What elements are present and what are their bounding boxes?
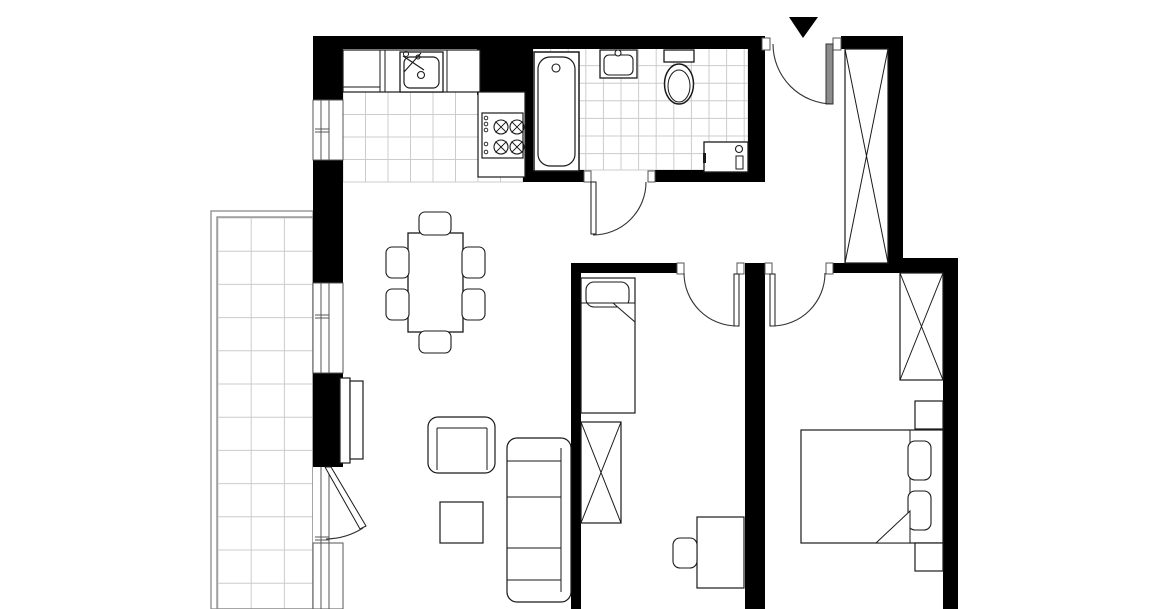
tv-screen	[340, 378, 350, 463]
dining-chair-left-1	[386, 247, 409, 278]
top-wall-left	[313, 36, 762, 49]
floor-plan-image	[0, 0, 1169, 609]
entrance-door-arc	[773, 44, 833, 104]
dining-table	[408, 233, 463, 332]
washing-machine-notch	[703, 153, 706, 163]
double-bed-pillow	[908, 441, 931, 480]
dining-chair-left-2	[386, 289, 409, 320]
kitchen-shaft-wall	[477, 48, 525, 95]
bedroom2-door-jamb	[826, 263, 833, 274]
bedroom1-door-leaf	[734, 274, 739, 326]
entrance-door-jamb	[833, 38, 841, 50]
left-wall-tv-pier	[313, 373, 343, 467]
armchair	[428, 417, 495, 473]
dining-chair-top	[419, 212, 451, 235]
dining-chair-right-1	[462, 247, 485, 278]
bathroom-door-leaf	[591, 182, 596, 234]
nightstand-bottom	[915, 543, 943, 571]
entrance-marker-triangle	[789, 17, 818, 38]
single-bed	[581, 278, 635, 413]
bedroom1-door-jamb	[737, 263, 744, 274]
bathtub	[534, 52, 579, 171]
nightstand-top	[915, 401, 943, 429]
balcony-door-sill	[313, 467, 343, 543]
desk-chair	[673, 538, 697, 568]
desk	[697, 517, 744, 588]
hall-east-wall	[888, 36, 903, 273]
double-bed-pillow	[908, 491, 931, 530]
washbasin-faucet	[615, 50, 621, 56]
bedroom2-east-wall	[943, 258, 958, 609]
tv-unit	[350, 381, 363, 459]
bathroom-door-jamb	[648, 171, 655, 182]
kitchen-window	[313, 100, 343, 160]
entrance-door-jamb	[762, 38, 770, 50]
coffee-table	[440, 502, 483, 543]
bedroom2-door-leaf	[770, 274, 775, 326]
living-room-window	[313, 283, 343, 373]
left-wall-top	[313, 36, 343, 100]
bedroom1-north-wall	[571, 263, 677, 273]
bedroom2-north-wall-left	[833, 263, 903, 273]
bedroom2-door-jamb	[765, 263, 772, 274]
bedroom1-west-wall	[571, 263, 581, 609]
entrance-door-leaf	[826, 44, 833, 104]
balcony-outline-outer	[211, 211, 313, 609]
dining-chair-bottom	[419, 331, 451, 353]
toilet-tank	[664, 50, 694, 62]
bedroom1-door-jamb	[677, 263, 684, 274]
bathroom-door-arc	[593, 182, 646, 235]
left-wall-mid	[313, 160, 343, 283]
bathroom-south-wall-left	[523, 170, 584, 182]
inter-bedroom-wall	[745, 263, 765, 609]
dining-chair-right-2	[462, 289, 485, 320]
bedroom2-door-arc	[772, 273, 825, 326]
bathroom-east-wall	[748, 36, 765, 182]
lower-left-window	[313, 543, 343, 609]
floor-plan-svg	[0, 0, 1169, 609]
bedroom1-door-arc	[684, 273, 737, 326]
bathroom-door-jamb	[584, 171, 591, 182]
